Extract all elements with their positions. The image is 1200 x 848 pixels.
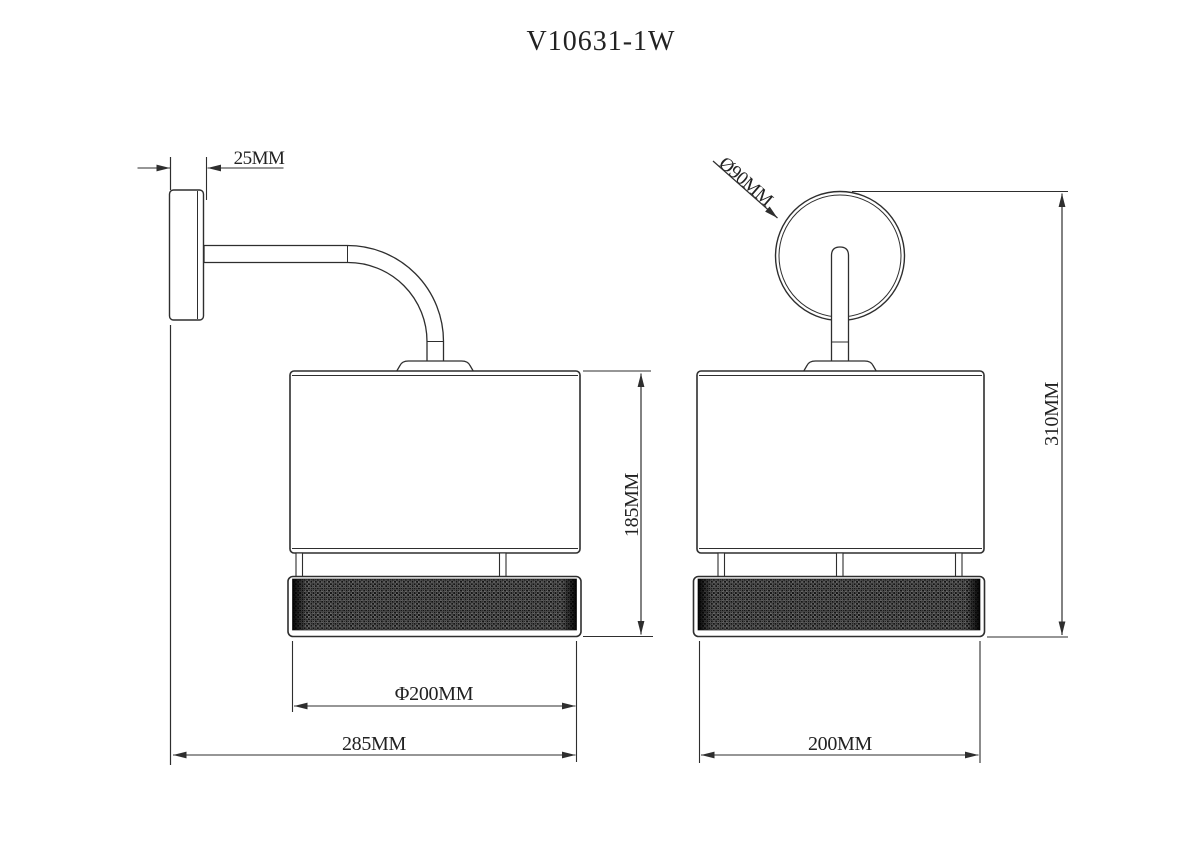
drawing-sheet: V10631-1W 25MM [0,0,1200,848]
front-shade-body [697,371,984,553]
front-view [694,192,985,637]
post [956,553,963,577]
dim-label-plate-depth: 25MM [234,148,285,169]
dim-label-shade-width: 200MM [808,733,873,755]
front-mesh-band-shading [698,579,980,630]
dim-label-shade-height: 185MM [621,472,643,537]
mesh-band-shading [293,579,577,630]
shade-body [290,371,580,553]
dim-label-backplate-diameter: Ø90MM [715,153,778,211]
front-arm [832,247,849,362]
dim-label-shade-diameter: Φ200MM [395,683,474,705]
front-shade-cap [804,361,877,372]
post [718,553,725,577]
drawing-title: V10631-1W [527,26,676,57]
wall-plate [170,190,204,320]
dim-label-total-depth: 285MM [342,733,407,755]
shade-cap [397,361,474,372]
curved-arm [204,246,444,362]
post [500,553,507,577]
technical-drawing-canvas: V10631-1W 25MM [0,0,1200,848]
post [837,553,844,577]
dim-label-total-height: 310MM [1041,381,1063,446]
side-view [170,157,582,765]
post [296,553,303,577]
